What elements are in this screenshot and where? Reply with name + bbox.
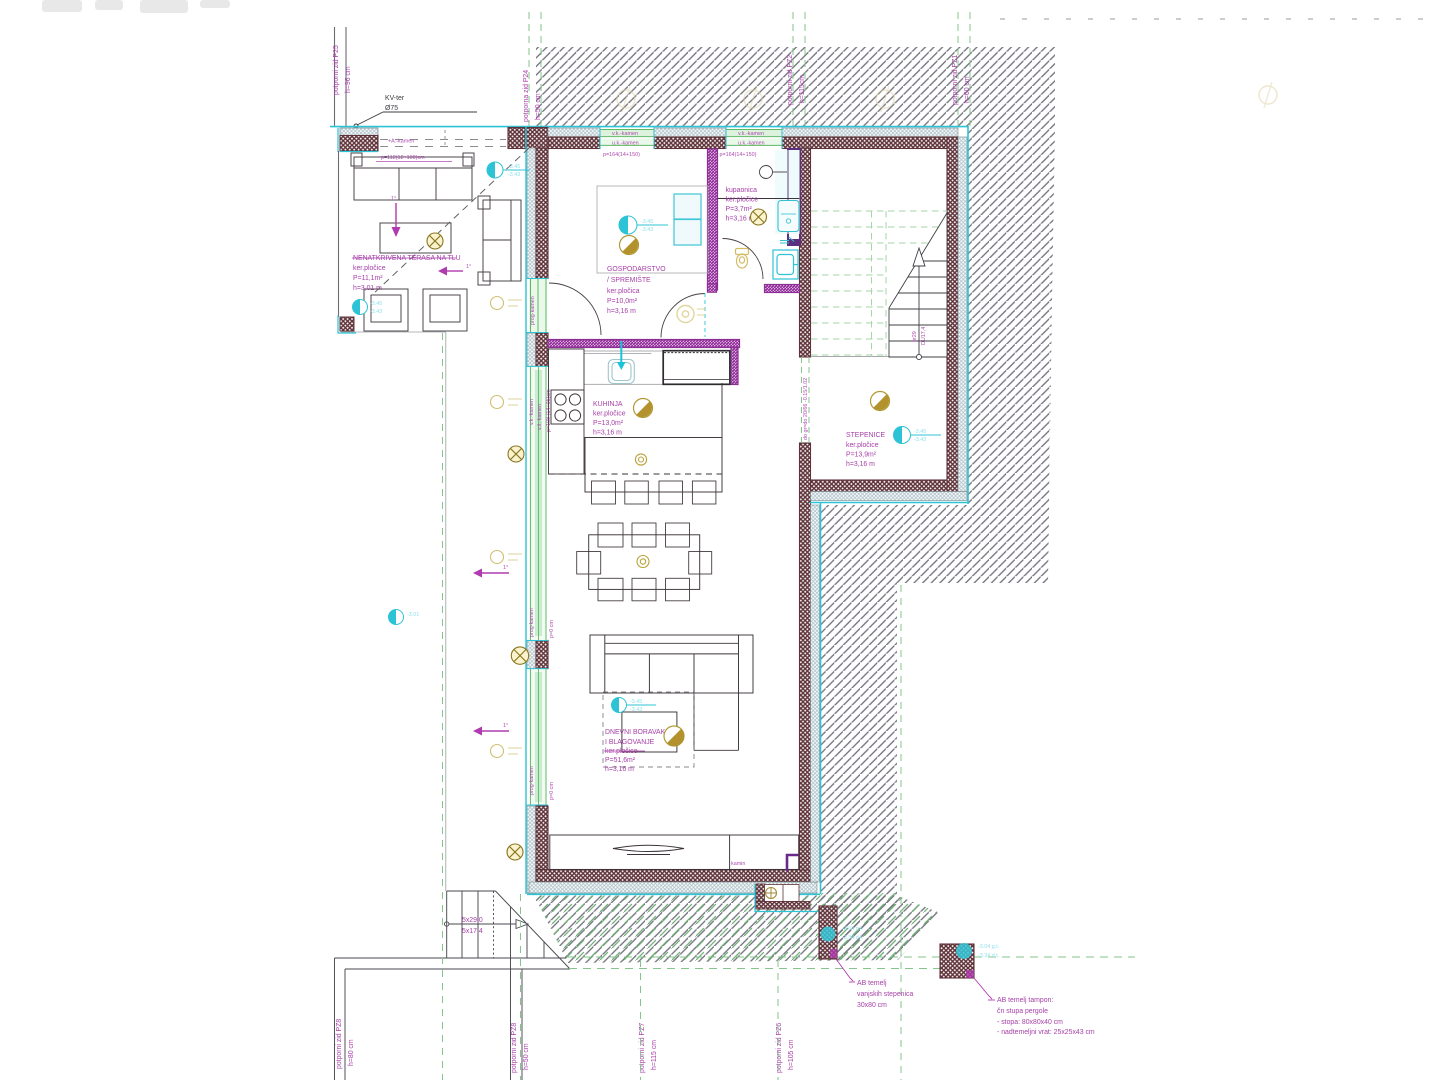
- svg-text:-3.34 d.t.: -3.34 d.t.: [978, 953, 999, 959]
- svg-text:1°: 1°: [503, 723, 508, 729]
- svg-text:P=11,1m²: P=11,1m²: [353, 275, 383, 282]
- svg-text:-3.01: -3.01: [407, 612, 419, 618]
- svg-text:prog-kamen: prog-kamen: [530, 296, 536, 325]
- svg-text:potporni zid PZ1: potporni zid PZ1: [952, 55, 959, 105]
- svg-text:h=105 cm: h=105 cm: [788, 1039, 795, 1070]
- svg-text:p=112(12+100)cm: p=112(12+100)cm: [381, 155, 425, 161]
- svg-text:kamin: kamin: [731, 861, 745, 867]
- svg-text:p=164(14+150): p=164(14+150): [720, 152, 757, 158]
- svg-text:DU17,4: DU17,4: [921, 327, 927, 345]
- svg-text:-3.45: -3.45: [630, 699, 642, 705]
- svg-text:AB temelj tampon:: AB temelj tampon:: [997, 997, 1053, 1004]
- svg-text:P=51,6m²: P=51,6m²: [605, 757, 636, 764]
- svg-text:5x29,0: 5x29,0: [462, 917, 483, 924]
- svg-text:+A:-kamen: +A:-kamen: [388, 139, 414, 145]
- svg-text:h=50 cm: h=50 cm: [535, 93, 542, 120]
- svg-text:STEPENICE: STEPENICE: [846, 432, 885, 439]
- svg-text:h=3,16 m: h=3,16 m: [605, 766, 634, 773]
- svg-text:- stopa: 80x80x40 cm: - stopa: 80x80x40 cm: [997, 1019, 1063, 1026]
- svg-text:h=50 cm: h=50 cm: [523, 1043, 530, 1070]
- svg-text:-3.04 g.t.: -3.04 g.t.: [978, 944, 999, 950]
- svg-text:ker.pločice: ker.pločice: [605, 748, 638, 755]
- svg-text:h=60 cm: h=60 cm: [964, 76, 971, 103]
- svg-text:potporni zid PZ2: potporni zid PZ2: [787, 55, 794, 105]
- svg-text:P=13,0m²: P=13,0m²: [593, 420, 624, 427]
- svg-text:GOSPODARSTVO: GOSPODARSTVO: [607, 266, 666, 273]
- svg-text:-3.43: -3.43: [508, 172, 520, 178]
- svg-text:-3.45: -3.45: [508, 164, 520, 170]
- svg-text:/ SPREMIŠTE: / SPREMIŠTE: [607, 275, 651, 284]
- svg-text:v.k.-kamen: v.k.-kamen: [738, 131, 764, 137]
- svg-text:ker.pločice: ker.pločice: [726, 197, 759, 204]
- svg-text:DNEVNI BORAVAK: DNEVNI BORAVAK: [605, 729, 666, 736]
- svg-text:P=3,7m²: P=3,7m²: [726, 206, 753, 213]
- svg-text:-3.43: -3.43: [630, 707, 642, 713]
- svg-text:ker.pločice: ker.pločice: [846, 442, 879, 449]
- svg-text:prog-kamen: prog-kamen: [529, 608, 535, 637]
- svg-text:1°: 1°: [503, 565, 508, 571]
- svg-text:ker.pločica: ker.pločica: [607, 288, 640, 295]
- svg-text:-3.45: -3.45: [370, 301, 382, 307]
- svg-text:KUHINJA: KUHINJA: [593, 401, 623, 408]
- svg-text:vanjskih stepenica: vanjskih stepenica: [857, 991, 913, 998]
- svg-text:1°: 1°: [466, 264, 471, 270]
- svg-text:potporni zid PZ8: potporni zid PZ8: [336, 1019, 343, 1069]
- svg-text:potporni zid PZ6: potporni zid PZ6: [776, 1023, 783, 1073]
- svg-text:potporna zid P24: potporna zid P24: [523, 70, 530, 122]
- svg-text:potporni zid P25: potporni zid P25: [333, 45, 340, 95]
- svg-text:P=13,9m²: P=13,9m²: [846, 452, 877, 459]
- svg-text:u.k.-kamen: u.k.-kamen: [738, 141, 765, 147]
- svg-text:h=96 cm: h=96 cm: [345, 66, 352, 93]
- svg-text:ker.pločice: ker.pločice: [353, 265, 386, 272]
- svg-text:čn stupa pergole: čn stupa pergole: [997, 1008, 1048, 1015]
- svg-text:ker.pločice: ker.pločice: [593, 411, 626, 418]
- svg-text:1°: 1°: [391, 196, 396, 202]
- svg-text:-3.45: -3.45: [641, 219, 653, 225]
- svg-text:h=3,01 m: h=3,01 m: [353, 285, 382, 292]
- svg-text:NENATKRIVENA TERASA NA TLU: NENATKRIVENA TERASA NA TLU: [353, 255, 461, 262]
- svg-text:h=115cm: h=115cm: [799, 75, 806, 103]
- svg-text:-3.04 g.t.: -3.04 g.t.: [842, 926, 863, 932]
- svg-text:u.k.-kamen: u.k.-kamen: [612, 141, 639, 147]
- svg-text:Ø75: Ø75: [385, 105, 398, 112]
- svg-text:v.k.-kamen: v.k.-kamen: [612, 131, 638, 137]
- svg-text:do gr=do 20/66 -0.15/1.02: do gr=do 20/66 -0.15/1.02: [803, 378, 809, 440]
- svg-text:p=0 cm: p=0 cm: [549, 782, 555, 800]
- svg-text:prog-kamen: prog-kamen: [529, 766, 535, 795]
- svg-text:AB temelj: AB temelj: [857, 980, 887, 987]
- svg-text:v.k.-kamen: v.k.-kamen: [529, 399, 535, 425]
- svg-text:-3.43: -3.43: [641, 227, 653, 233]
- svg-text:h=80 cm: h=80 cm: [348, 1039, 355, 1066]
- svg-text:h=115 cm: h=115 cm: [651, 1040, 658, 1070]
- svg-text:-3.45: -3.45: [914, 429, 926, 435]
- svg-text:-3.43: -3.43: [370, 309, 382, 315]
- svg-text:v.š.-kamen: v.š.-kamen: [537, 404, 543, 430]
- svg-text:h=3,16 m: h=3,16 m: [607, 308, 636, 315]
- svg-text:P=10,0m²: P=10,0m²: [607, 298, 638, 305]
- svg-text:- nadtemeljni vrat: 25x25x43 c: - nadtemeljni vrat: 25x25x43 cm: [997, 1029, 1095, 1036]
- svg-text:-3.43: -3.43: [914, 437, 926, 443]
- svg-text:5x17,4: 5x17,4: [462, 928, 483, 935]
- svg-text:-3.34 d.t.: -3.34 d.t.: [842, 935, 863, 941]
- svg-text:p=0 cm: p=0 cm: [549, 620, 555, 638]
- svg-text:I BLAGOVANJE: I BLAGOVANJE: [605, 739, 655, 746]
- svg-text:KV-ter: KV-ter: [385, 95, 405, 102]
- svg-text:30x80 cm: 30x80 cm: [857, 1002, 887, 1009]
- svg-text:kupaonica: kupaonica: [726, 187, 758, 194]
- svg-text:h=3,16 m: h=3,16 m: [593, 430, 622, 437]
- svg-text:h=3,16 m: h=3,16 m: [846, 461, 875, 468]
- svg-text:potporni zid PZ8: potporni zid PZ8: [511, 1023, 518, 1073]
- svg-text:p=164(14+150): p=164(14+150): [603, 152, 640, 158]
- svg-text:br29: br29: [912, 331, 918, 342]
